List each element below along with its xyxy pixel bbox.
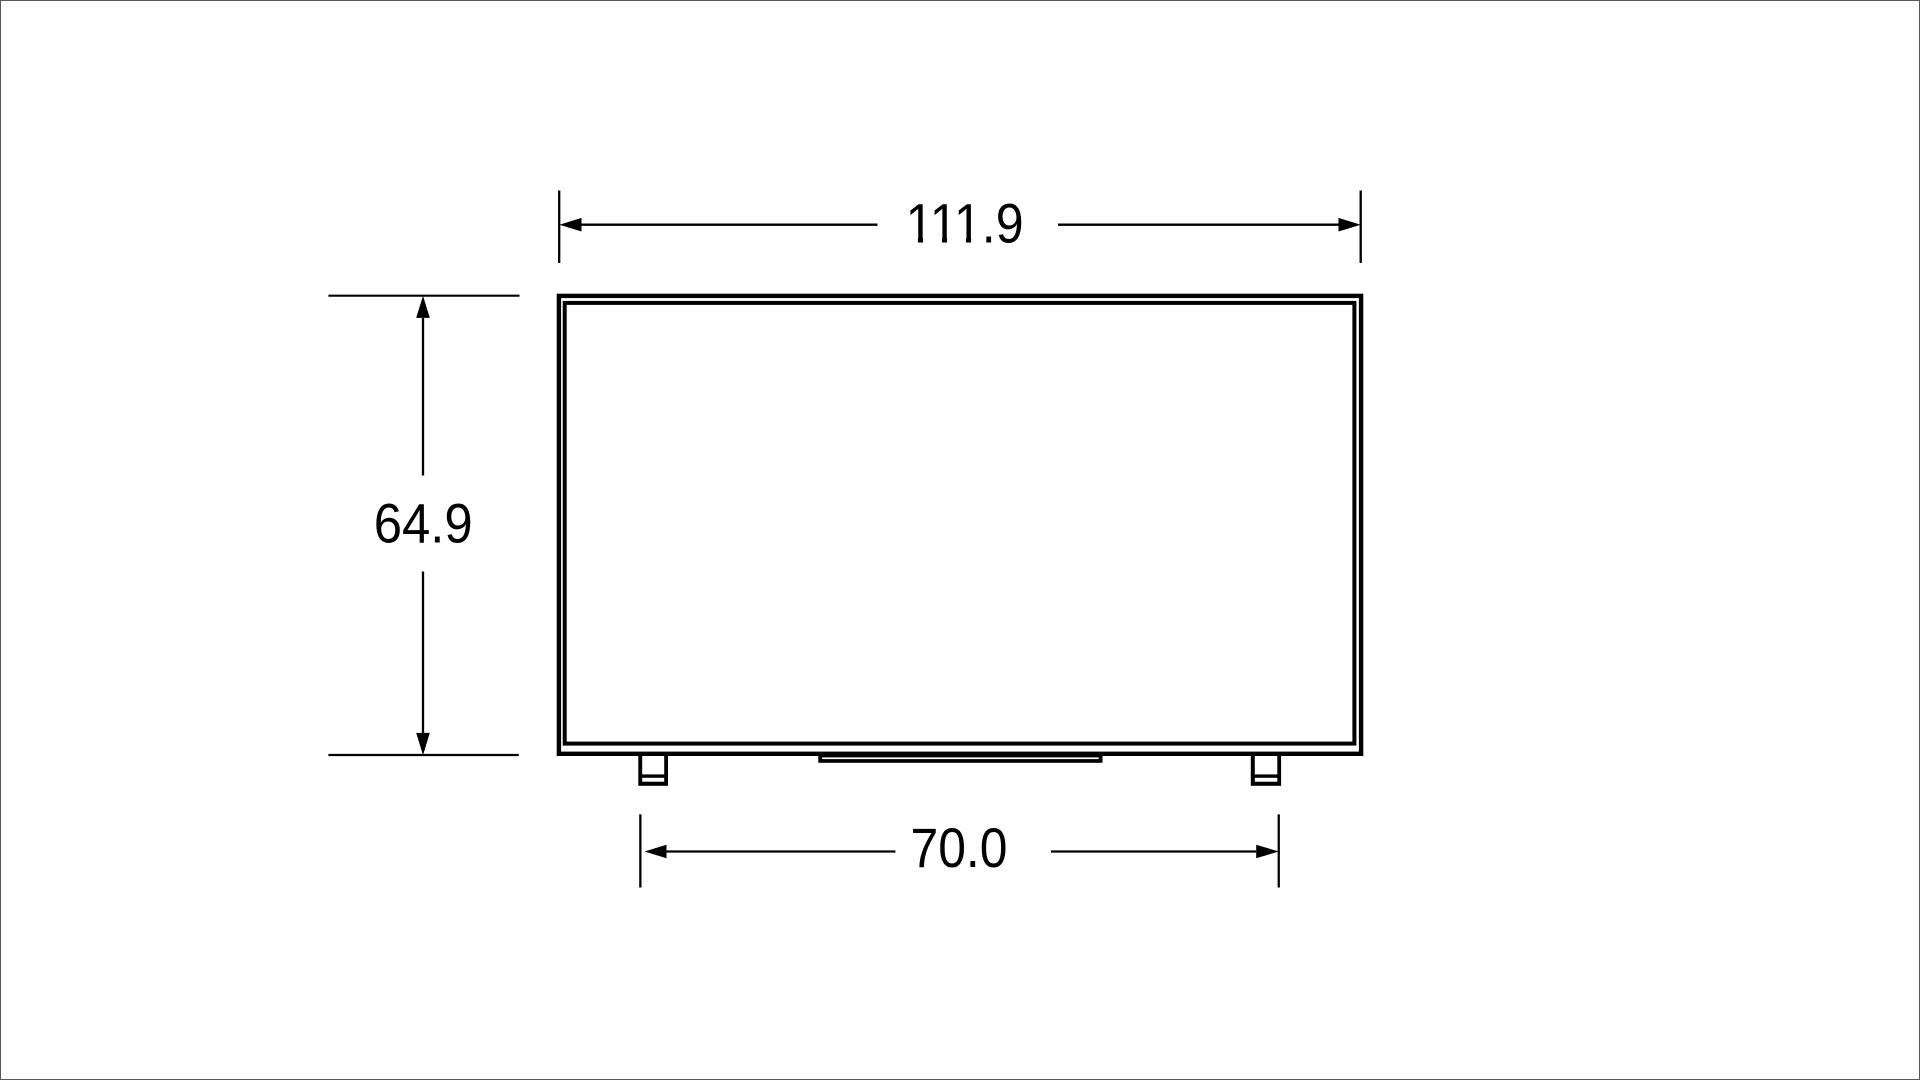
svg-text:64.9: 64.9 (374, 493, 473, 555)
svg-text:70.0: 70.0 (911, 817, 1008, 879)
